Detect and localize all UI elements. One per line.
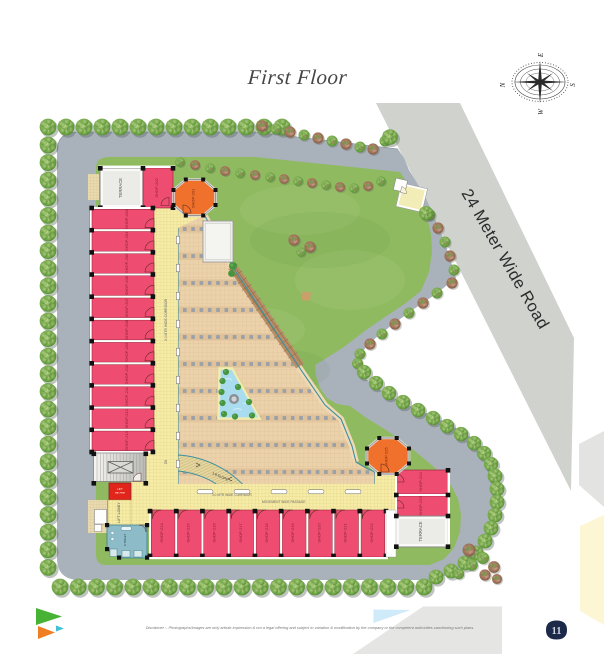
svg-text:MACHINE: MACHINE [115,492,126,495]
svg-text:MOVEMENT WIDE PASSAGE: MOVEMENT WIDE PASSAGE [262,500,305,504]
svg-text:E: E [537,52,545,58]
svg-text:N: N [499,82,507,88]
svg-text:SHOP-208: SHOP-208 [124,320,129,340]
svg-text:SHOP-216: SHOP-216 [212,523,217,543]
svg-text:SHOP-203: SHOP-203 [124,209,129,229]
svg-text:SHOP-217: SHOP-217 [238,523,243,543]
svg-text:SHOP-213: SHOP-213 [124,430,129,450]
svg-text:Disclaimer :- Photographs/Imag: Disclaimer :- Photographs/Images are onl… [146,625,475,630]
svg-text:SHOP-219: SHOP-219 [290,523,295,543]
svg-text:11: 11 [552,626,562,637]
svg-text:SHOP-224: SHOP-224 [418,472,423,492]
svg-text:SHOP-222: SHOP-222 [369,523,374,543]
svg-text:LIFT LOBBY: LIFT LOBBY [117,502,121,523]
svg-text:SHOP-205: SHOP-205 [124,253,129,273]
svg-text:LIFT: LIFT [117,487,123,491]
svg-text:SHOP-215: SHOP-215 [185,523,190,543]
svg-text:SHOP-220: SHOP-220 [316,523,321,543]
svg-text:TERRACE: TERRACE [418,521,423,541]
svg-text:SHOP-201: SHOP-201 [191,188,196,208]
svg-text:SHOP-206: SHOP-206 [124,275,129,295]
svg-text:SHOP-225: SHOP-225 [384,447,389,467]
svg-text:DN: DN [164,459,168,464]
svg-text:SHOP-212: SHOP-212 [124,408,129,428]
svg-text:SHOP-211: SHOP-211 [124,386,129,406]
svg-text:First Floor: First Floor [246,65,348,89]
svg-text:SHOP-218: SHOP-218 [264,523,269,543]
svg-text:SHOP-202: SHOP-202 [154,178,159,198]
svg-text:SHOP-207: SHOP-207 [124,297,129,317]
svg-text:SHOP-214: SHOP-214 [159,523,164,543]
svg-text:TERRACE: TERRACE [118,178,123,198]
svg-text:SHOP-221: SHOP-221 [343,523,348,543]
svg-text:S: S [569,83,577,87]
svg-text:S.TOILET: S.TOILET [123,534,127,547]
svg-text:SHOP-210: SHOP-210 [124,364,129,384]
svg-text:SHOP-209: SHOP-209 [124,342,129,362]
svg-text:SHOP-204: SHOP-204 [124,231,129,251]
svg-text:3.0 MTR WIDE CORRIDOR: 3.0 MTR WIDE CORRIDOR [164,298,168,341]
svg-text:SHOP-223: SHOP-223 [418,496,423,516]
